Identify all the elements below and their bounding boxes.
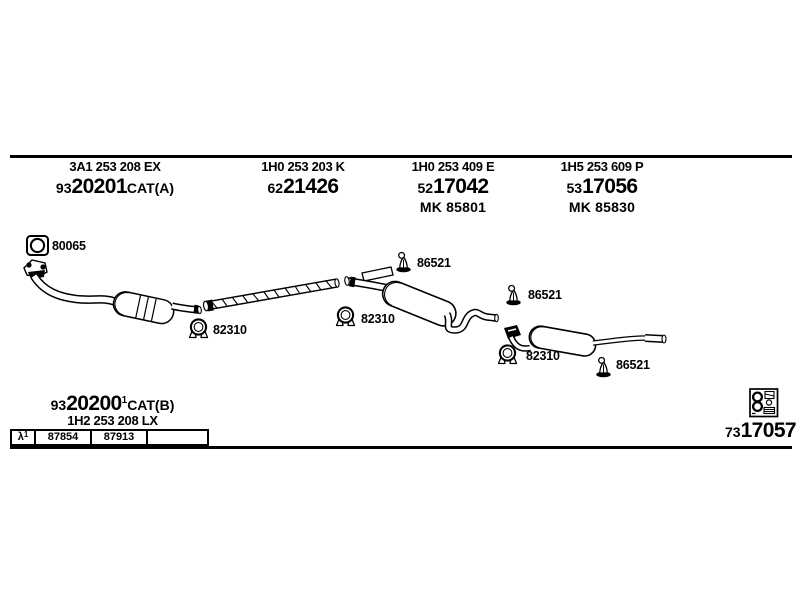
- lambda-footnote: 1: [24, 430, 28, 439]
- walker-code: 93 20200 1 CAT(B): [25, 393, 200, 414]
- rubber-hanger-icon-middle: [396, 253, 410, 273]
- rubber-hanger-icon-rear-top: [506, 286, 520, 306]
- part-label-gasket: 80065: [52, 240, 86, 253]
- code-number: 20200: [66, 393, 121, 414]
- table-cell: [146, 431, 207, 444]
- code-number: 17057: [741, 420, 796, 441]
- fitting-kit-code: 73 17057: [725, 420, 796, 441]
- part-group-front-pipe-variant-b: 93 20200 1 CAT(B) 1H2 253 208 LX: [25, 391, 200, 428]
- part-label-clamp-rear: 82310: [526, 350, 560, 363]
- pipe-clamp-icon-front: [190, 319, 208, 337]
- code-suffix: CAT(B): [127, 398, 174, 412]
- part-label-hanger-rear-top: 86521: [528, 289, 562, 302]
- rubber-hanger-icon-rear: [596, 358, 610, 378]
- code-prefix: 93: [51, 398, 67, 412]
- part-label-clamp-middle: 82310: [361, 313, 395, 326]
- lambda-sensor-table: λ1 87854 87913: [10, 429, 209, 446]
- table-cell: 87913: [90, 431, 146, 444]
- oem-number: 1H2 253 208 LX: [25, 414, 200, 428]
- flange-gasket-icon: [27, 236, 48, 255]
- part-label-hanger-middle: 86521: [417, 257, 451, 270]
- pipe-clamp-icon-rear: [499, 345, 517, 363]
- exhaust-parts-catalog-page: 3A1 253 208 EX 93 20201 CAT(A) 1H0 253 2…: [0, 0, 800, 600]
- code-prefix: 73: [725, 425, 741, 439]
- table-row-header: λ1: [12, 431, 34, 444]
- exhaust-system-diagram: [0, 0, 800, 600]
- center-pipe: [203, 279, 340, 312]
- pipe-clamp-icon-middle: [337, 307, 355, 325]
- part-label-hanger-rear: 86521: [616, 359, 650, 372]
- lambda-symbol: λ: [18, 431, 24, 443]
- footnote-reference: 1: [122, 396, 128, 406]
- fitting-kit-icon: [749, 388, 779, 423]
- table-cell: 87854: [34, 431, 90, 444]
- bottom-rule: [10, 446, 792, 449]
- front-pipe-with-catalyst: [24, 260, 202, 326]
- part-label-clamp-front: 82310: [213, 324, 247, 337]
